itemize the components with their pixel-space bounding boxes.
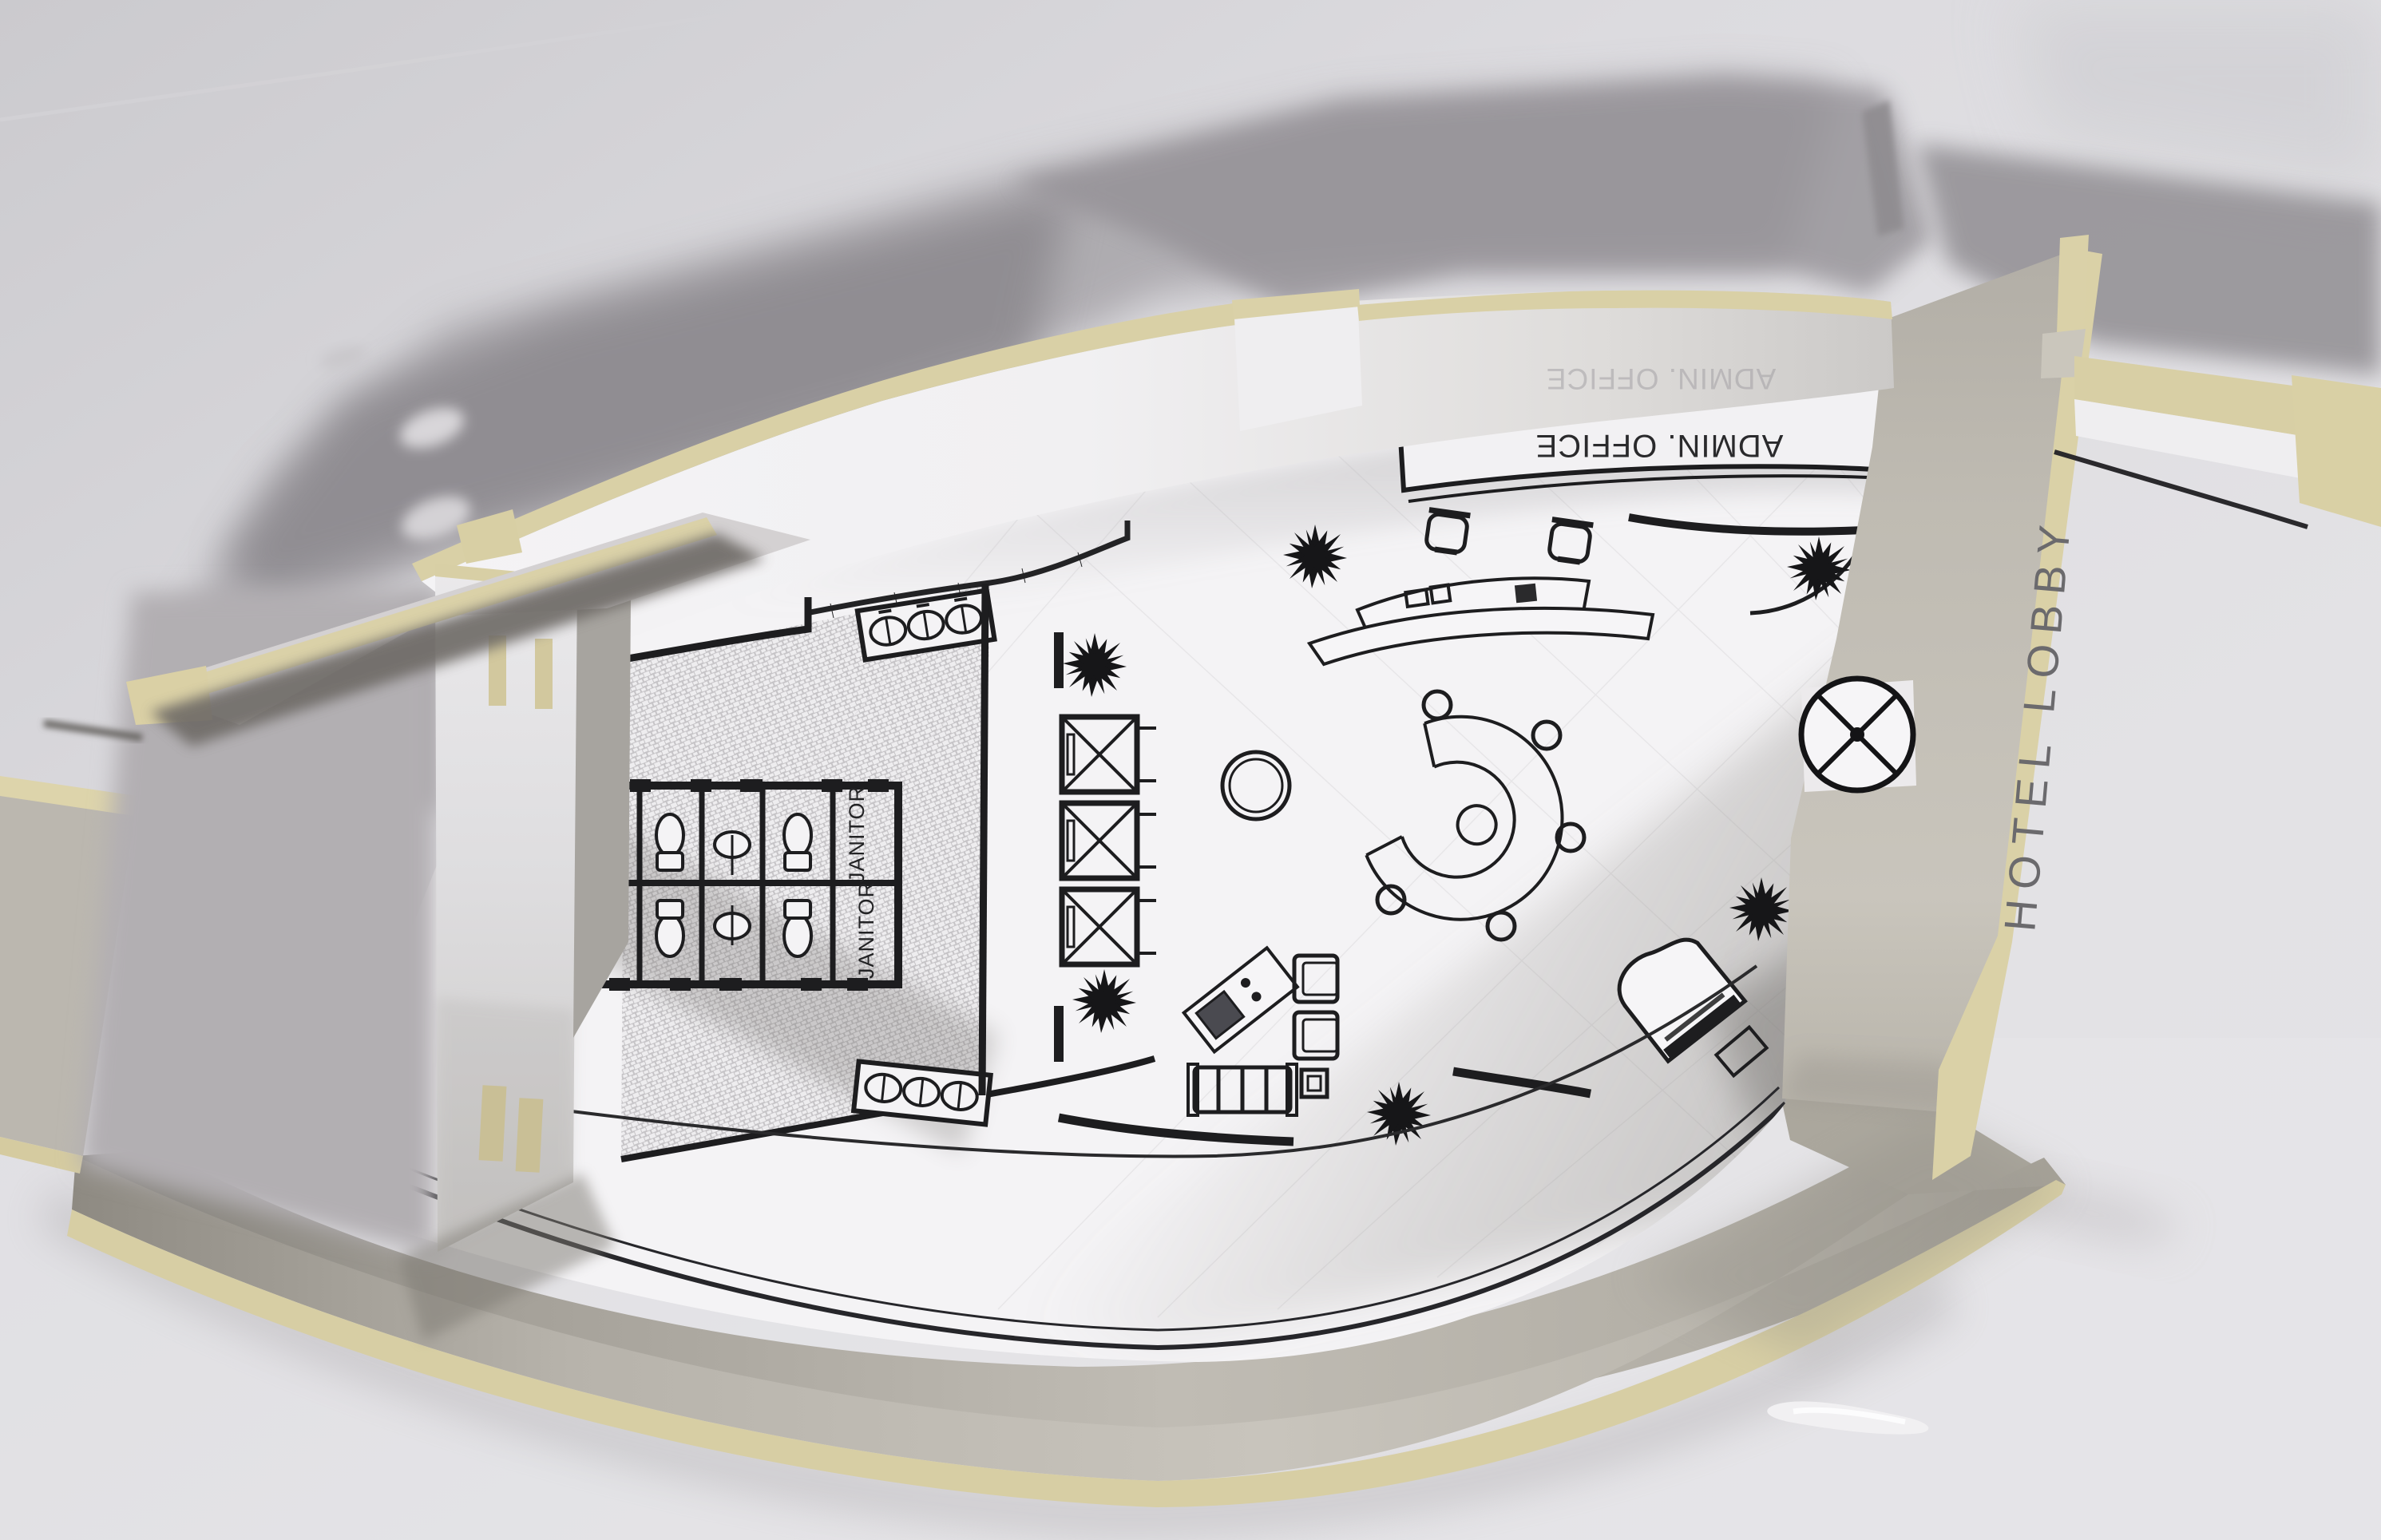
svg-text:ADMIN. OFFICE: ADMIN. OFFICE xyxy=(1535,428,1784,463)
svg-text:JANITOR: JANITOR xyxy=(854,881,878,979)
svg-text:ADMIN. OFFICE: ADMIN. OFFICE xyxy=(1546,362,1776,395)
svg-text:JANITOR: JANITOR xyxy=(845,786,869,883)
